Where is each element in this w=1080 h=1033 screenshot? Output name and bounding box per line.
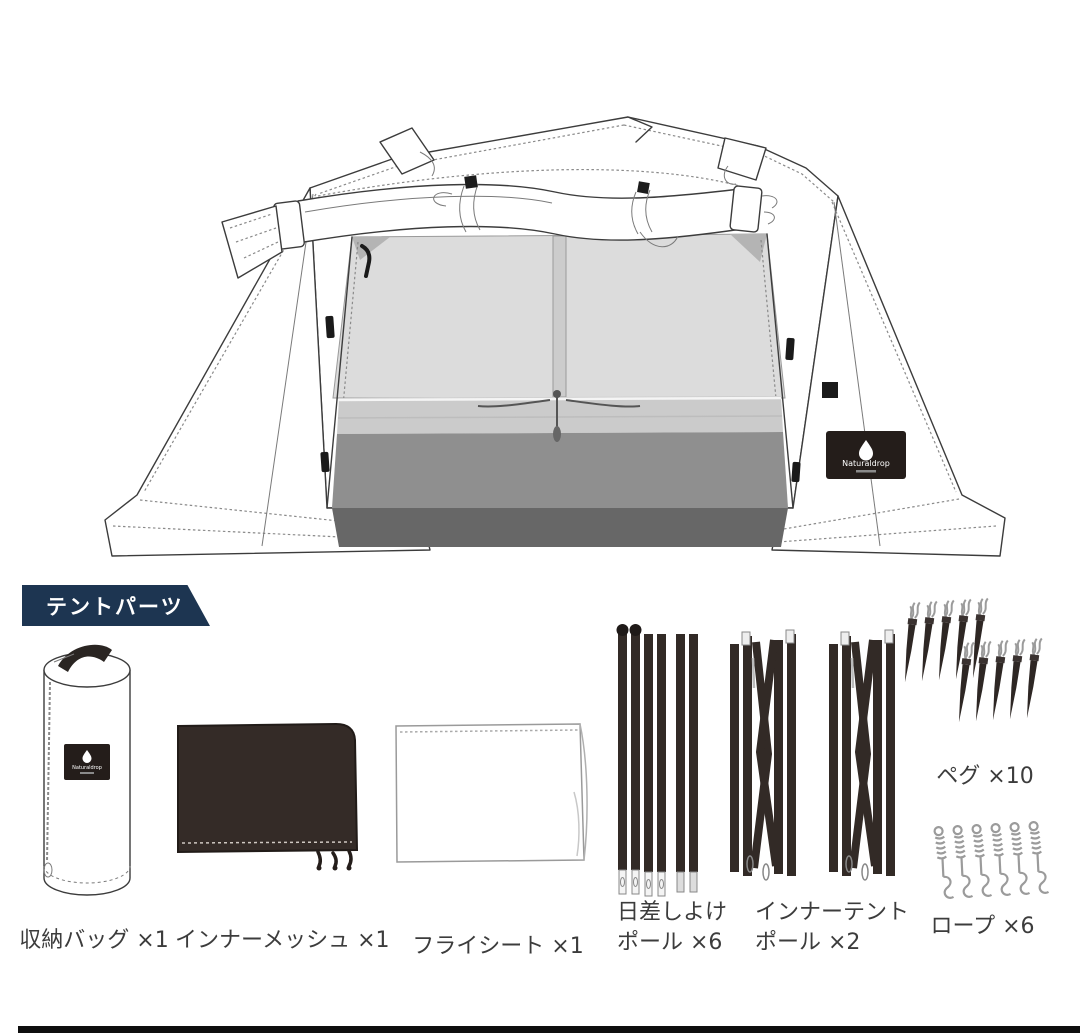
- tent-illustration: Naturaldrop: [80, 100, 1020, 578]
- tent-brand-label: Naturaldrop: [826, 431, 906, 479]
- pegs-figure: [898, 596, 1078, 768]
- mesh-zipper-pulls: [317, 851, 352, 871]
- brand-name-text: Naturaldrop: [72, 765, 102, 771]
- fly-sheet-label: フライシート ×1: [398, 932, 598, 962]
- storage-bag-label: 収納バッグ ×1: [8, 926, 180, 956]
- floor-front-face: [332, 432, 788, 508]
- floor-upper-band: [337, 396, 783, 434]
- floor-dark-band: [332, 508, 788, 547]
- inner-tent-poles-label: インナーテント ポール ×2: [755, 898, 909, 958]
- inner-mesh-figure: [168, 712, 376, 882]
- storage-bag-figure: Naturaldrop: [28, 640, 146, 912]
- bottom-divider-bar: [18, 1026, 1080, 1033]
- ropes-label: ロープ ×6: [910, 912, 1055, 942]
- sunshade-poles-figure: [612, 620, 727, 905]
- mesh-center-divider: [553, 236, 566, 397]
- mesh-stitch-line: [182, 842, 352, 843]
- pole-pair-short: [676, 634, 698, 892]
- inner-tent-poles-label-line1: インナーテント: [755, 898, 909, 928]
- ropes-figure: [924, 820, 1056, 918]
- inner-mesh-label: インナーメッシュ ×1: [175, 926, 380, 956]
- sunshade-poles-label-line2: ポール ×6: [617, 928, 727, 958]
- fly-sheet-figure: [388, 712, 600, 877]
- product-diagram-page: Naturaldrop テントパーツ Naturaldrop: [0, 0, 1080, 1033]
- inner-tent-poles-label-line2: ポール ×2: [755, 928, 909, 958]
- section-banner-label: テントパーツ: [22, 591, 184, 621]
- sunshade-poles-label: 日差しよけ ポール ×6: [617, 898, 727, 958]
- pegs-label: ペグ ×10: [915, 762, 1055, 792]
- sunshade-poles-label-line1: 日差しよけ: [617, 898, 727, 928]
- bag-brand-label: Naturaldrop: [64, 744, 110, 780]
- brand-name-text: Naturaldrop: [842, 459, 890, 468]
- section-banner: テントパーツ: [22, 585, 210, 626]
- inner-tent-poles-figure: [726, 628, 911, 890]
